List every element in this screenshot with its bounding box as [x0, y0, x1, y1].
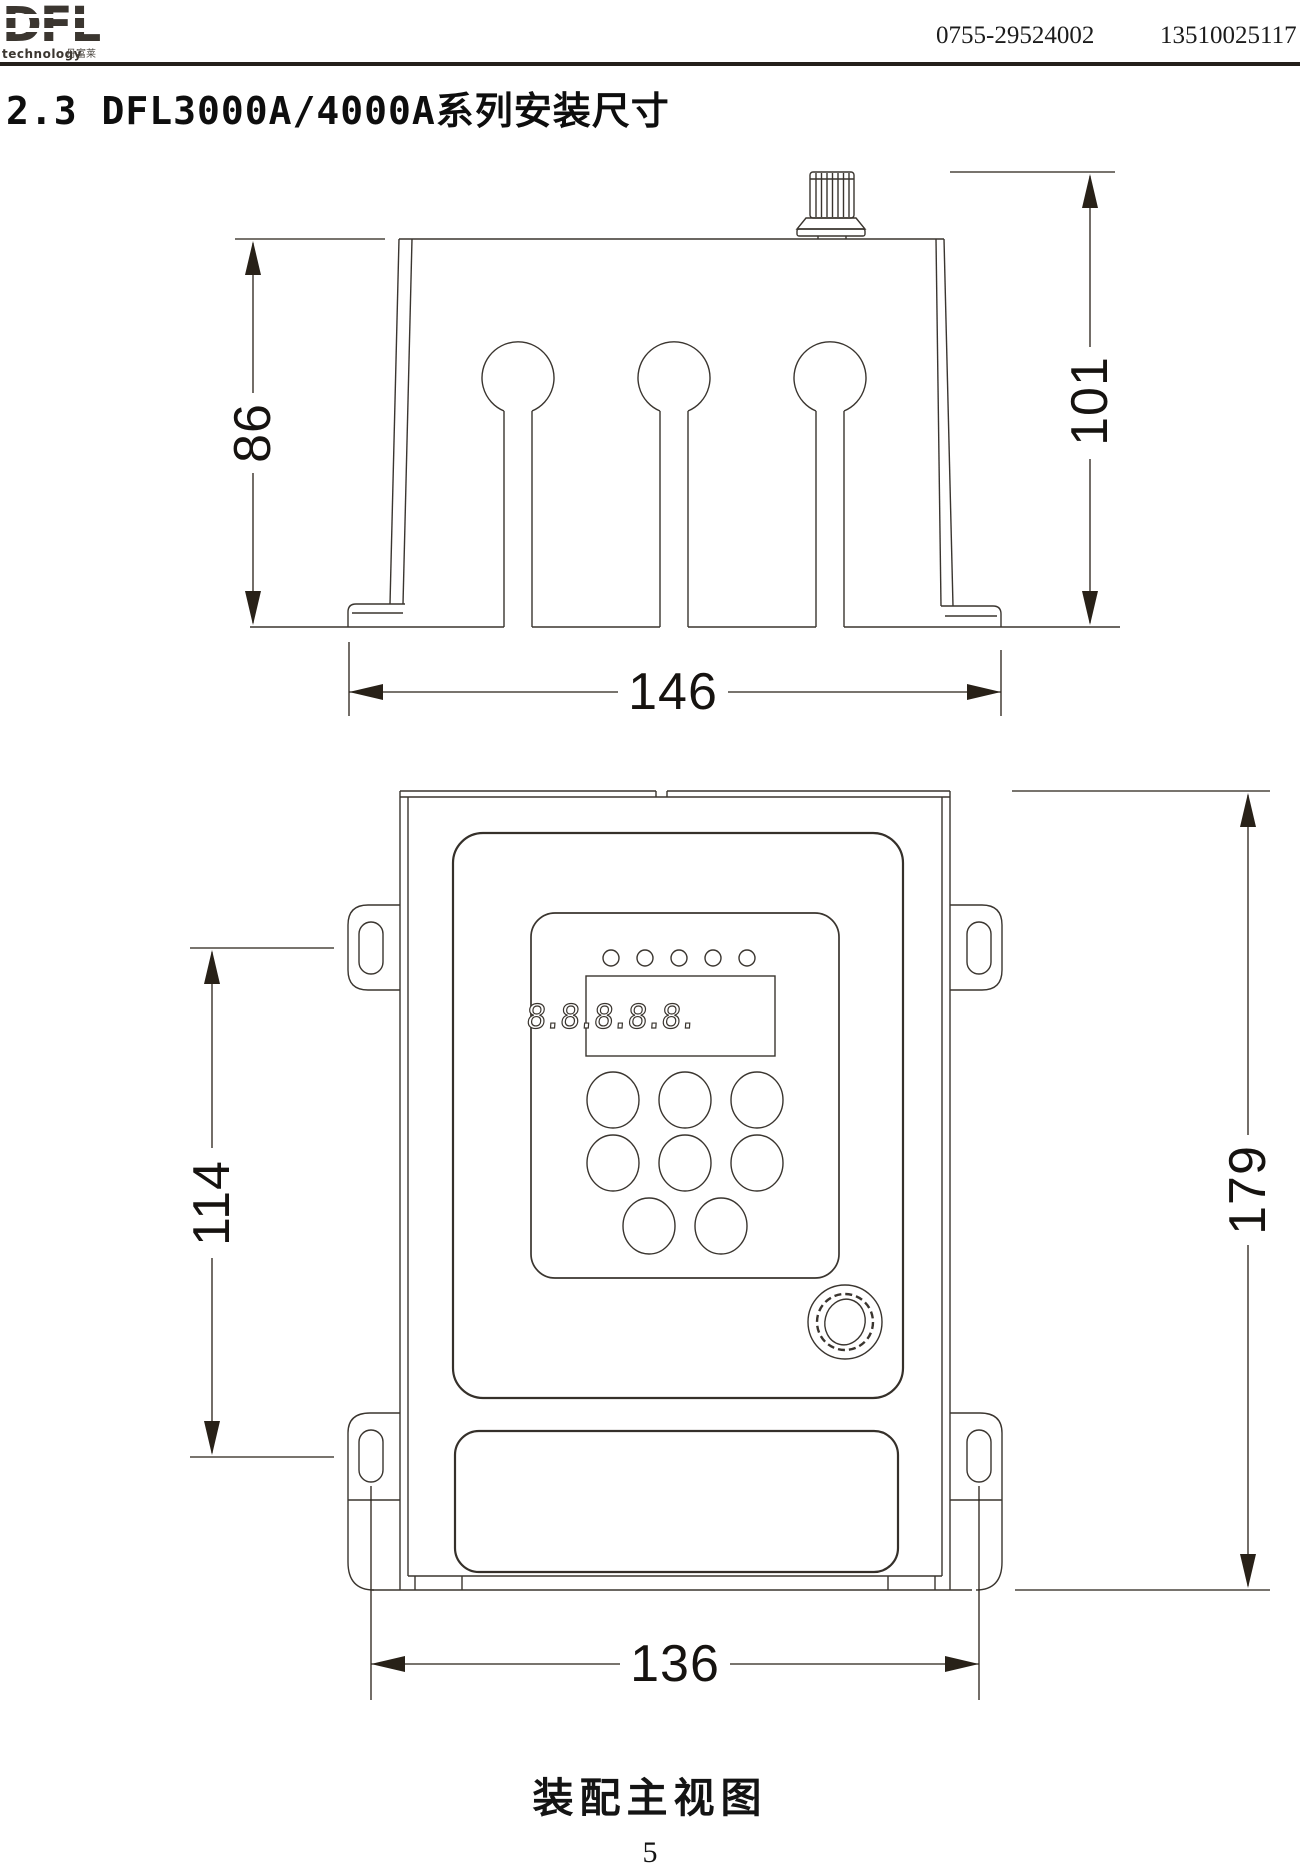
dim-136: 136 — [371, 1486, 979, 1700]
front-door — [453, 833, 903, 1398]
dim-146: 146 — [349, 642, 1001, 721]
side-right-wall-outer — [944, 239, 953, 606]
page-number: 5 — [0, 1836, 1300, 1870]
dim-86: 86 — [224, 239, 385, 625]
side-keyhole-slots — [482, 342, 866, 627]
front-body-top — [400, 791, 950, 797]
installation-drawings: 86 101 146 — [0, 0, 1300, 1760]
dim-101: 101 — [950, 172, 1119, 625]
dim-label-101: 101 — [1061, 356, 1119, 446]
dim-label-146: 146 — [628, 663, 718, 721]
side-right-foot — [941, 606, 1001, 627]
dim-114: 114 — [183, 948, 334, 1457]
dim-label-136: 136 — [630, 1635, 720, 1693]
dim-179: 179 — [1012, 791, 1277, 1590]
dim-label-86: 86 — [224, 403, 282, 463]
terminal-cover — [455, 1431, 898, 1572]
manual-page: DFL technology 丹富莱 0755-29524002 1351002… — [0, 0, 1300, 1875]
side-view-drawing: 86 101 146 — [224, 172, 1120, 721]
dim-label-114: 114 — [183, 1160, 241, 1246]
keypad-buttons — [587, 1072, 783, 1254]
display-digits: 8.8.8.8.8. — [525, 997, 696, 1036]
front-bottom-ears — [348, 1413, 1002, 1590]
led-indicators — [603, 950, 755, 966]
side-left-wall-outer — [390, 239, 399, 604]
dim-label-179: 179 — [1219, 1145, 1277, 1235]
front-view-drawing: 8.8.8.8.8. 114 — [183, 791, 1277, 1700]
figure-caption: 装配主视图 — [0, 1764, 1300, 1824]
side-view-knob — [797, 172, 865, 239]
control-panel — [531, 913, 839, 1278]
door-knob — [808, 1285, 882, 1359]
side-right-wall-inner — [936, 239, 941, 606]
side-left-wall-inner — [403, 239, 412, 604]
side-left-foot — [348, 604, 405, 627]
front-feet — [408, 1576, 942, 1590]
